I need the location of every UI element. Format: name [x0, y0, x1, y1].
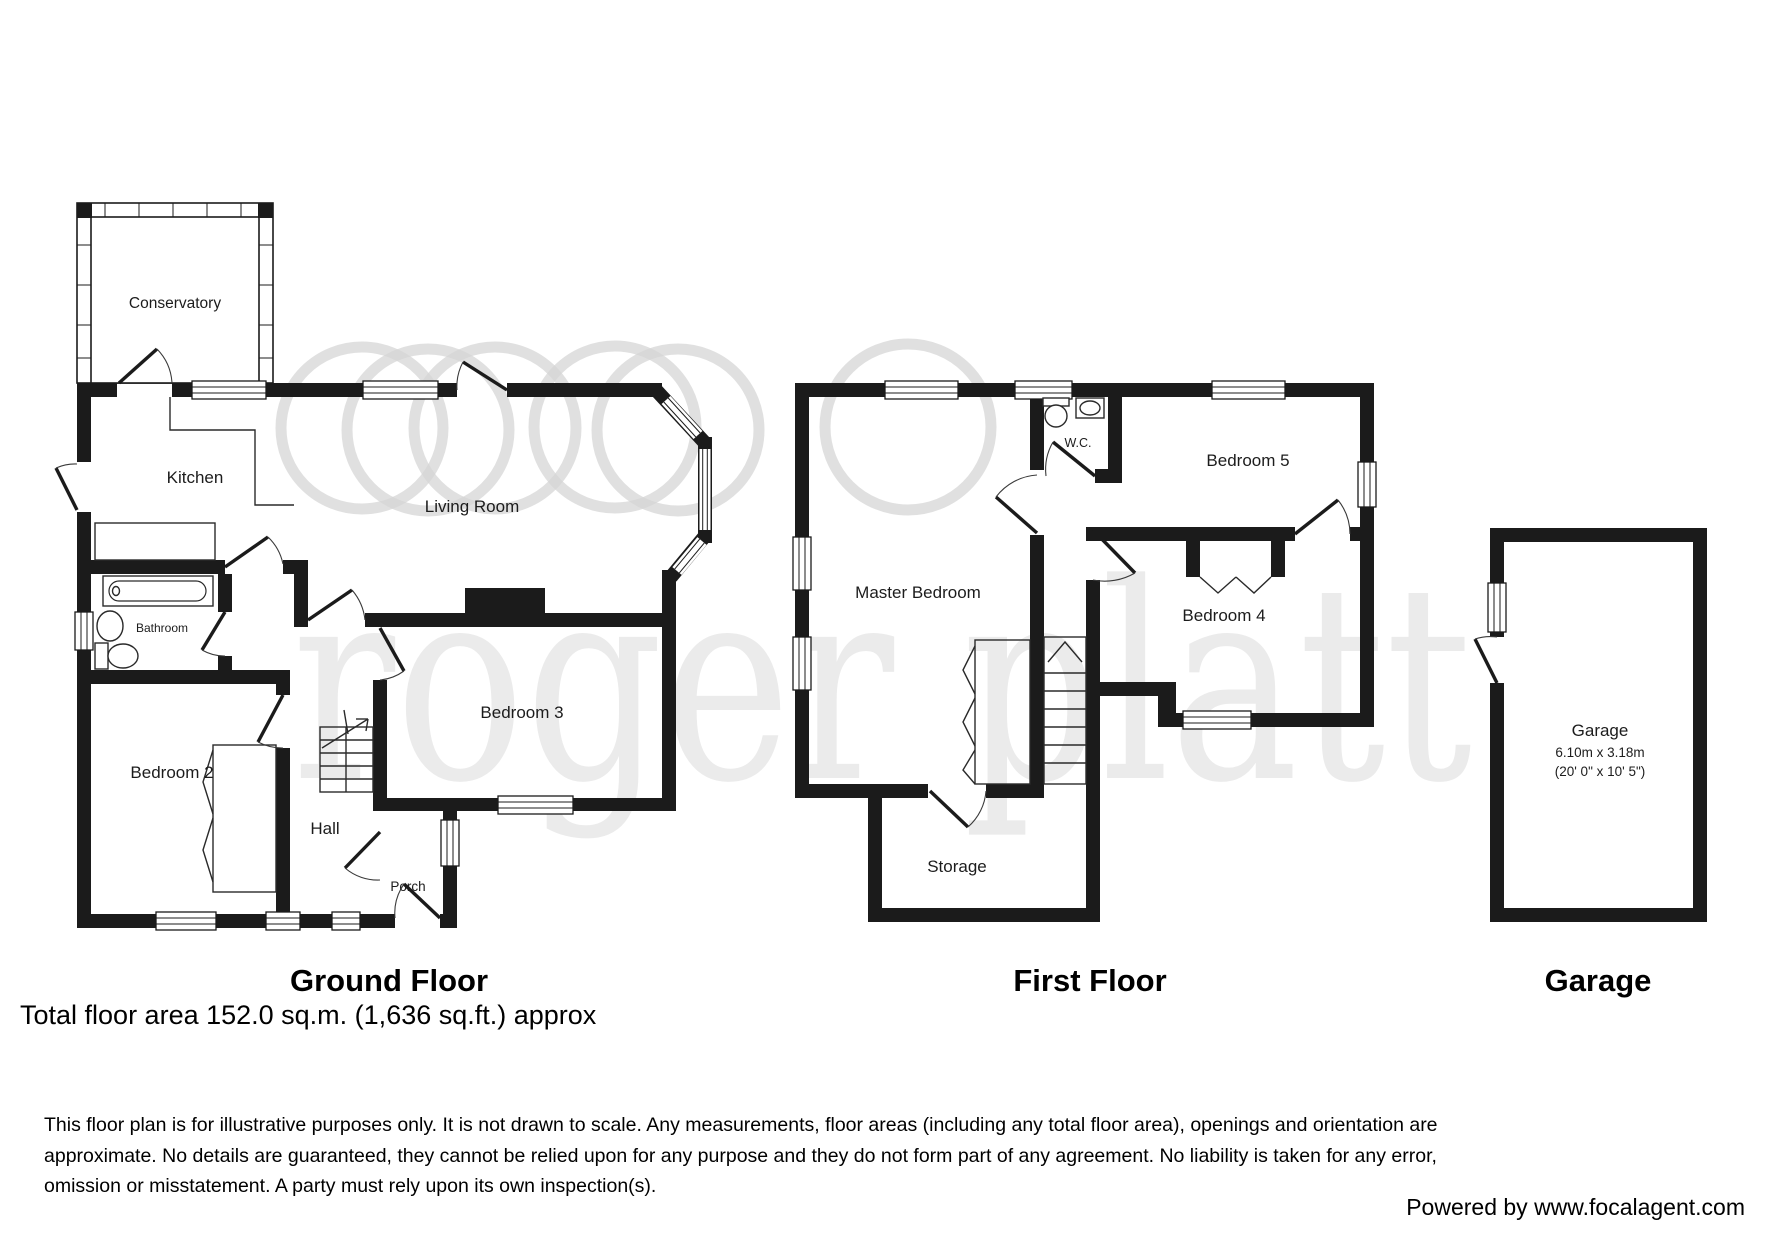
garage-dimensions-imperial: (20' 0" x 10' 5")	[1555, 764, 1646, 779]
disclaimer-line-2: approximate. No details are guaranteed, …	[44, 1141, 1438, 1172]
disclaimer-line-3: omission or misstatement. A party must r…	[44, 1171, 1438, 1202]
bathroom-sink	[97, 611, 123, 641]
first-floor-title: First Floor	[1013, 963, 1166, 998]
room-label-kitchen: Kitchen	[167, 468, 224, 487]
room-label-bedroom-5: Bedroom 5	[1206, 451, 1289, 470]
floorplan-drawing: roger platt	[0, 0, 1771, 1240]
room-label-living-room: Living Room	[425, 497, 520, 516]
wc-toilet	[1043, 398, 1069, 427]
wc-sink	[1076, 398, 1104, 418]
garage-window	[1488, 583, 1506, 632]
ground-floor-title: Ground Floor	[290, 963, 488, 998]
garage-dimensions-metric: 6.10m x 3.18m	[1555, 745, 1644, 760]
disclaimer: This floor plan is for illustrative purp…	[44, 1110, 1438, 1202]
garage-door	[1475, 637, 1497, 683]
room-label-bedroom-3: Bedroom 3	[480, 703, 563, 722]
floorplan-page: { "watermark": { "text": "roger platt" }…	[0, 0, 1771, 1240]
conservatory-glazing	[77, 203, 273, 383]
room-label-porch: Porch	[390, 879, 425, 894]
room-label-master-bedroom: Master Bedroom	[855, 583, 981, 602]
watermark-logo-rings	[281, 344, 991, 511]
disclaimer-line-1: This floor plan is for illustrative purp…	[44, 1110, 1438, 1141]
garage-title: Garage	[1545, 963, 1652, 998]
room-label-conservatory: Conservatory	[129, 295, 221, 312]
room-label-bedroom-2: Bedroom 2	[130, 763, 213, 782]
room-label-storage: Storage	[927, 857, 987, 876]
total-floor-area: Total floor area 152.0 sq.m. (1,636 sq.f…	[20, 1000, 596, 1031]
garage-plan: Garage 6.10m x 3.18m (20' 0" x 10' 5") G…	[1475, 528, 1707, 998]
room-label-garage: Garage	[1572, 721, 1629, 740]
bathtub	[103, 576, 213, 606]
room-label-wc: W.C.	[1064, 436, 1091, 450]
bedroom2-closet	[203, 745, 276, 892]
room-label-bedroom-4: Bedroom 4	[1182, 606, 1265, 625]
bathroom-toilet	[95, 643, 138, 669]
room-label-hall: Hall	[310, 819, 339, 838]
room-label-bathroom: Bathroom	[136, 621, 188, 635]
powered-by-credit: Powered by www.focalagent.com	[1406, 1194, 1745, 1221]
